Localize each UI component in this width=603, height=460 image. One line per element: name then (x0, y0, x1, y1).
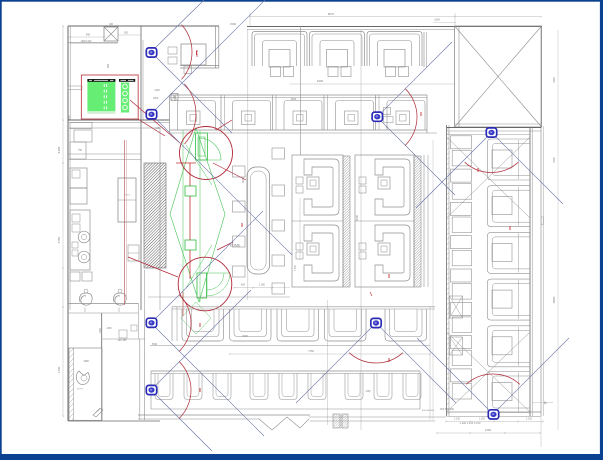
svg-text:1988: 1988 (83, 360, 89, 363)
svg-text:1.100: 1.100 (526, 419, 532, 421)
svg-text:1904: 1904 (291, 97, 297, 101)
svg-text:1260: 1260 (153, 97, 159, 100)
svg-text:1.100: 1.100 (454, 419, 460, 421)
svg-text:600: 600 (241, 284, 246, 287)
svg-text:2500: 2500 (242, 334, 248, 338)
svg-text:800: 800 (107, 63, 110, 68)
svg-text:756: 756 (78, 149, 83, 152)
svg-text:940: 940 (86, 34, 91, 37)
svg-text:1500: 1500 (230, 22, 237, 26)
svg-text:1.300: 1.300 (259, 284, 266, 287)
svg-text:1900: 1900 (317, 79, 324, 83)
svg-text:1150: 1150 (106, 327, 112, 330)
svg-text:2160: 2160 (485, 428, 492, 432)
svg-text:5600: 5600 (355, 214, 359, 221)
svg-text:8070: 8070 (328, 12, 335, 16)
svg-text:8405: 8405 (57, 146, 61, 153)
svg-text:1.500: 1.500 (295, 264, 297, 270)
svg-text:7150: 7150 (308, 349, 314, 353)
svg-text:140.185: 140.185 (117, 339, 127, 342)
svg-text:1460: 1460 (154, 89, 160, 92)
svg-text:13680: 13680 (553, 296, 556, 304)
svg-text:4050: 4050 (553, 77, 556, 83)
svg-text:1500: 1500 (434, 19, 440, 22)
svg-text:1760: 1760 (57, 366, 61, 373)
svg-text:4750: 4750 (57, 236, 61, 243)
svg-text:1500: 1500 (553, 157, 556, 163)
svg-text:562: 562 (124, 32, 129, 35)
svg-text:1150: 1150 (155, 127, 161, 130)
svg-text:1.100: 1.100 (479, 419, 485, 421)
svg-text:1100: 1100 (365, 390, 371, 393)
svg-text:300.300.300: 300.300.300 (422, 410, 435, 412)
svg-text:? ? ?: ? ? ? (77, 387, 83, 391)
svg-text:? ? ?: ? ? ? (124, 194, 130, 197)
